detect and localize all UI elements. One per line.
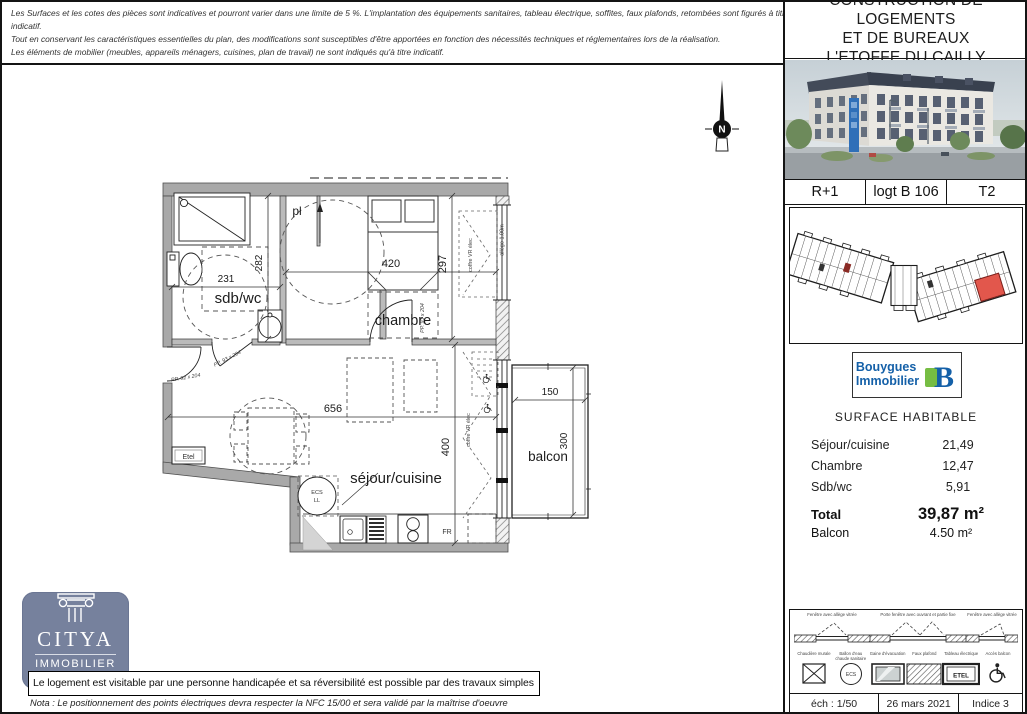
table-total-row: Total 39,87 m² <box>785 505 1027 524</box>
wheelchair-mark-icon <box>483 374 490 383</box>
building-photo <box>785 60 1027 180</box>
unit-type: T2 <box>946 180 1027 204</box>
agency-name: CITYA <box>37 627 114 652</box>
shutter-label: coffre VR élec <box>468 238 474 272</box>
disclaimer-box: Les Surfaces et les cotes des pièces son… <box>2 2 801 65</box>
water-heater: ECS LL <box>298 476 338 516</box>
duct-icon <box>871 662 905 686</box>
water-heater-icon: ECS <box>838 662 864 686</box>
cooktop <box>398 515 428 543</box>
svg-text:B: B <box>934 361 954 392</box>
room-label-placard: pl <box>292 204 301 218</box>
unit-lot: logt B 106 <box>865 180 946 204</box>
surface-heading: SURFACE HABITABLE <box>785 410 1027 424</box>
shower <box>174 193 250 245</box>
developer-logo: Bouygues Immobilier B <box>852 352 962 398</box>
date-label: 26 mars 2021 <box>878 694 959 714</box>
electrical-panel-icon: ETEL <box>942 662 980 686</box>
wheelchair-icon <box>986 662 1010 686</box>
false-ceiling-icon <box>906 662 942 686</box>
svg-text:ECS: ECS <box>311 490 323 496</box>
shutter-label: coffre VR élec <box>466 413 472 447</box>
disclaimer-line: Les éléments de mobilier (meubles, appar… <box>11 46 790 59</box>
table-row: Chambre 12,47 <box>785 459 1027 473</box>
column-capital-icon <box>54 592 98 626</box>
door-label: PP. 92 x 204 <box>171 372 201 383</box>
electrical-nota: Nota : Le positionnement des points élec… <box>30 698 508 708</box>
legend-item: Tableau électrique ETEL <box>943 652 979 686</box>
svg-text:ETEL: ETEL <box>953 673 969 680</box>
legend-window-item: Porte fenêtre avec ouvrant et partie fix… <box>870 612 966 650</box>
drainer <box>367 516 386 543</box>
unit-level: R+1 <box>785 180 865 204</box>
counter-corner <box>303 517 333 550</box>
legend-item: Ballon d'eau chaude sanitaire ECS <box>833 652 869 686</box>
surface-table: SURFACE HABITABLE Séjour/cuisine 21,49 C… <box>785 402 1027 540</box>
legend-item: Faux plafond <box>906 652 942 686</box>
svg-text:150: 150 <box>542 387 559 398</box>
table-row: Sdb/wc 5,91 <box>785 480 1027 494</box>
svg-text:420: 420 <box>382 258 400 270</box>
room-label-sejour: séjour/cuisine <box>350 470 442 487</box>
bed <box>368 196 438 290</box>
room-label-chambre: chambre <box>375 313 431 329</box>
svg-text:231: 231 <box>218 274 235 285</box>
table-balcony-row: Balcon 4.50 m² <box>785 526 1027 540</box>
dashed-furniture <box>234 358 496 543</box>
boiler-icon <box>801 662 827 686</box>
svg-text:400: 400 <box>440 438 452 456</box>
drawing-info-row: éch : 1/50 26 mars 2021 Indice 3 <box>789 693 1023 714</box>
svg-text:297: 297 <box>437 255 449 273</box>
legend-item: Accès balcon <box>980 652 1016 686</box>
svg-text:allège 1.00m: allège 1.00m <box>500 224 506 256</box>
svg-text:N: N <box>718 125 725 136</box>
room-label-balcon: balcon <box>528 449 568 464</box>
key-plan <box>789 207 1023 344</box>
door-label: PP. 93 x 204 <box>213 350 242 369</box>
room-label-sdb: sdb/wc <box>215 290 262 307</box>
agency-subtitle: IMMOBILIER <box>35 654 116 670</box>
sejour-window <box>493 360 511 518</box>
legend-item: Chaudière murale <box>796 652 832 686</box>
svg-text:Etel: Etel <box>182 454 195 461</box>
disclaimer-line: Tout en conservant les caractéristiques … <box>11 33 790 46</box>
accessibility-note: Le logement est visitable par une person… <box>28 671 540 696</box>
fridge-label: FR <box>442 529 451 536</box>
plan-sheet: Les Surfaces et les cotes des pièces son… <box>0 0 1027 714</box>
legend-window-item: Fenêtre avec allège vitrée <box>794 612 870 650</box>
table-row: Séjour/cuisine 21,49 <box>785 438 1027 452</box>
toilet <box>167 252 202 286</box>
north-arrow: N <box>705 80 739 151</box>
svg-text:LL: LL <box>314 498 320 504</box>
legend-window-item: Fenêtre avec allège vitrée <box>966 612 1018 650</box>
title-column: CONSTRUCTION DE LOGEMENTS ET DE BUREAUX … <box>783 2 1027 712</box>
project-title: CONSTRUCTION DE LOGEMENTS ET DE BUREAUX … <box>785 2 1027 59</box>
etel-box: Etel <box>172 447 205 464</box>
svg-text:656: 656 <box>324 403 342 415</box>
scale-label: éch : 1/50 <box>790 694 878 714</box>
legend: Fenêtre avec allège vitrée Porte fenêtre… <box>789 609 1023 695</box>
index-label: Indice 3 <box>959 694 1022 714</box>
wheelchair-mark-icon <box>484 404 491 413</box>
disclaimer-line: Les Surfaces et les cotes des pièces son… <box>11 7 790 33</box>
svg-text:ECS: ECS <box>846 672 857 678</box>
bouygues-b-icon: B <box>924 358 958 392</box>
legend-icon-row: Chaudière murale Ballon d'eau chaude san… <box>790 652 1022 686</box>
sink <box>340 516 366 543</box>
svg-text:300: 300 <box>559 432 570 449</box>
legend-item: Gaine d'évacuation <box>870 652 906 686</box>
shutter-chambre <box>459 211 497 297</box>
chambre-window: allège 1.00m <box>493 205 511 300</box>
unit-info-row: R+1 logt B 106 T2 <box>785 180 1027 205</box>
legend-window-row: Fenêtre avec allège vitrée Porte fenêtre… <box>790 612 1022 650</box>
svg-text:282: 282 <box>254 254 265 271</box>
